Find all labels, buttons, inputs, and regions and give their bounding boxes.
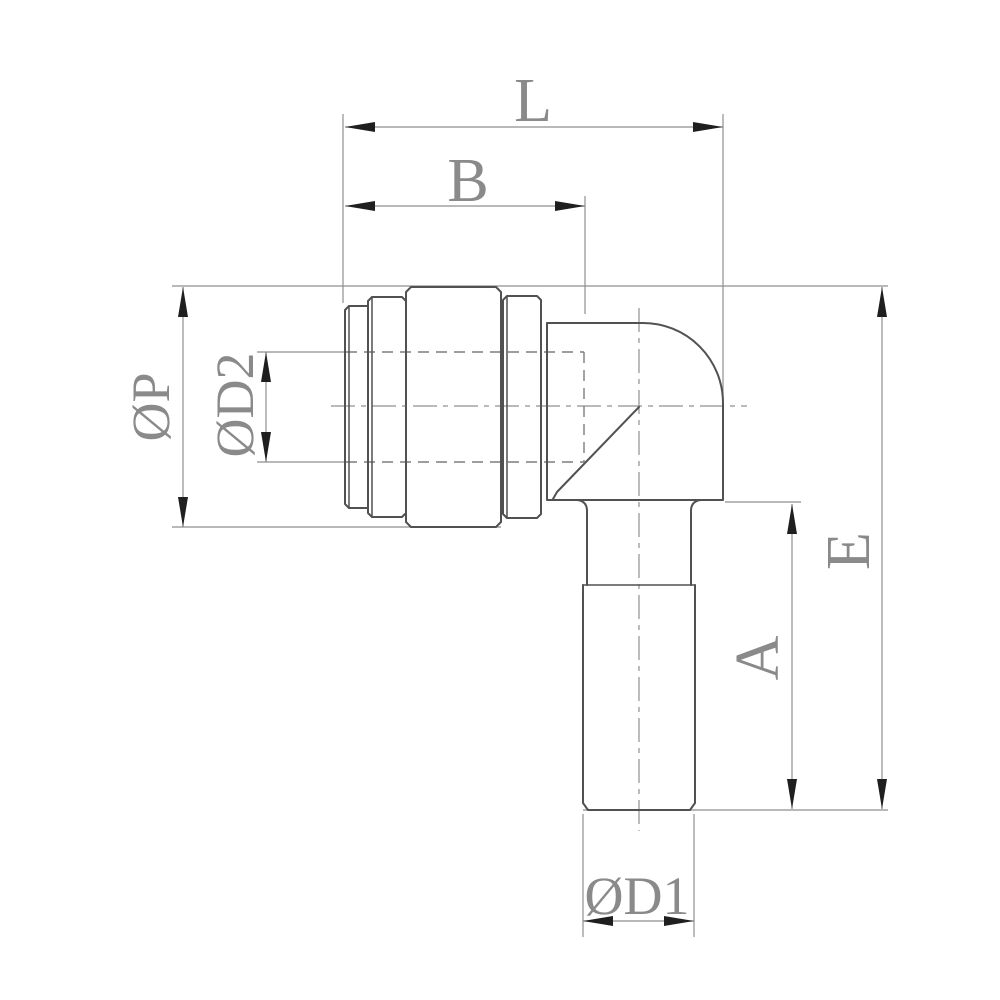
body-outline bbox=[345, 287, 723, 810]
arrow-L-right bbox=[693, 122, 723, 132]
collet-ring-front bbox=[503, 296, 541, 518]
arrow-P-top bbox=[178, 287, 188, 317]
dim-label-E: E bbox=[815, 532, 883, 570]
elbow-corner-diagonal bbox=[553, 407, 639, 499]
elbow-fitting-drawing: L B ØP ØD2 E A ØD1 bbox=[0, 0, 1000, 1000]
dim-label-D2: ØD2 bbox=[205, 353, 265, 458]
drawing-canvas: L B ØP ØD2 E A ØD1 bbox=[0, 0, 1000, 1000]
neck-right-wall bbox=[691, 500, 701, 585]
arrow-A-top bbox=[787, 504, 797, 534]
arrow-B-left bbox=[345, 201, 375, 211]
centerlines bbox=[331, 308, 747, 831]
dimension-lines bbox=[172, 114, 888, 937]
arrow-E-top bbox=[877, 287, 887, 317]
arrow-A-bottom bbox=[787, 779, 797, 809]
main-sleeve bbox=[406, 287, 501, 527]
dim-label-P: ØP bbox=[121, 372, 181, 441]
arrow-L-left bbox=[345, 122, 375, 132]
dim-label-L: L bbox=[514, 67, 552, 135]
arrow-B-right bbox=[555, 201, 585, 211]
hidden-bore-lines bbox=[346, 352, 584, 462]
neck-left-wall bbox=[577, 500, 587, 585]
arrow-P-bottom bbox=[178, 497, 188, 527]
dim-label-D1: ØD1 bbox=[585, 866, 690, 926]
dim-label-B: B bbox=[447, 147, 488, 215]
dim-label-A: A bbox=[724, 635, 792, 680]
arrow-E-bottom bbox=[877, 779, 887, 809]
collet-ring-rear bbox=[368, 297, 406, 517]
arrowheads bbox=[178, 122, 887, 926]
